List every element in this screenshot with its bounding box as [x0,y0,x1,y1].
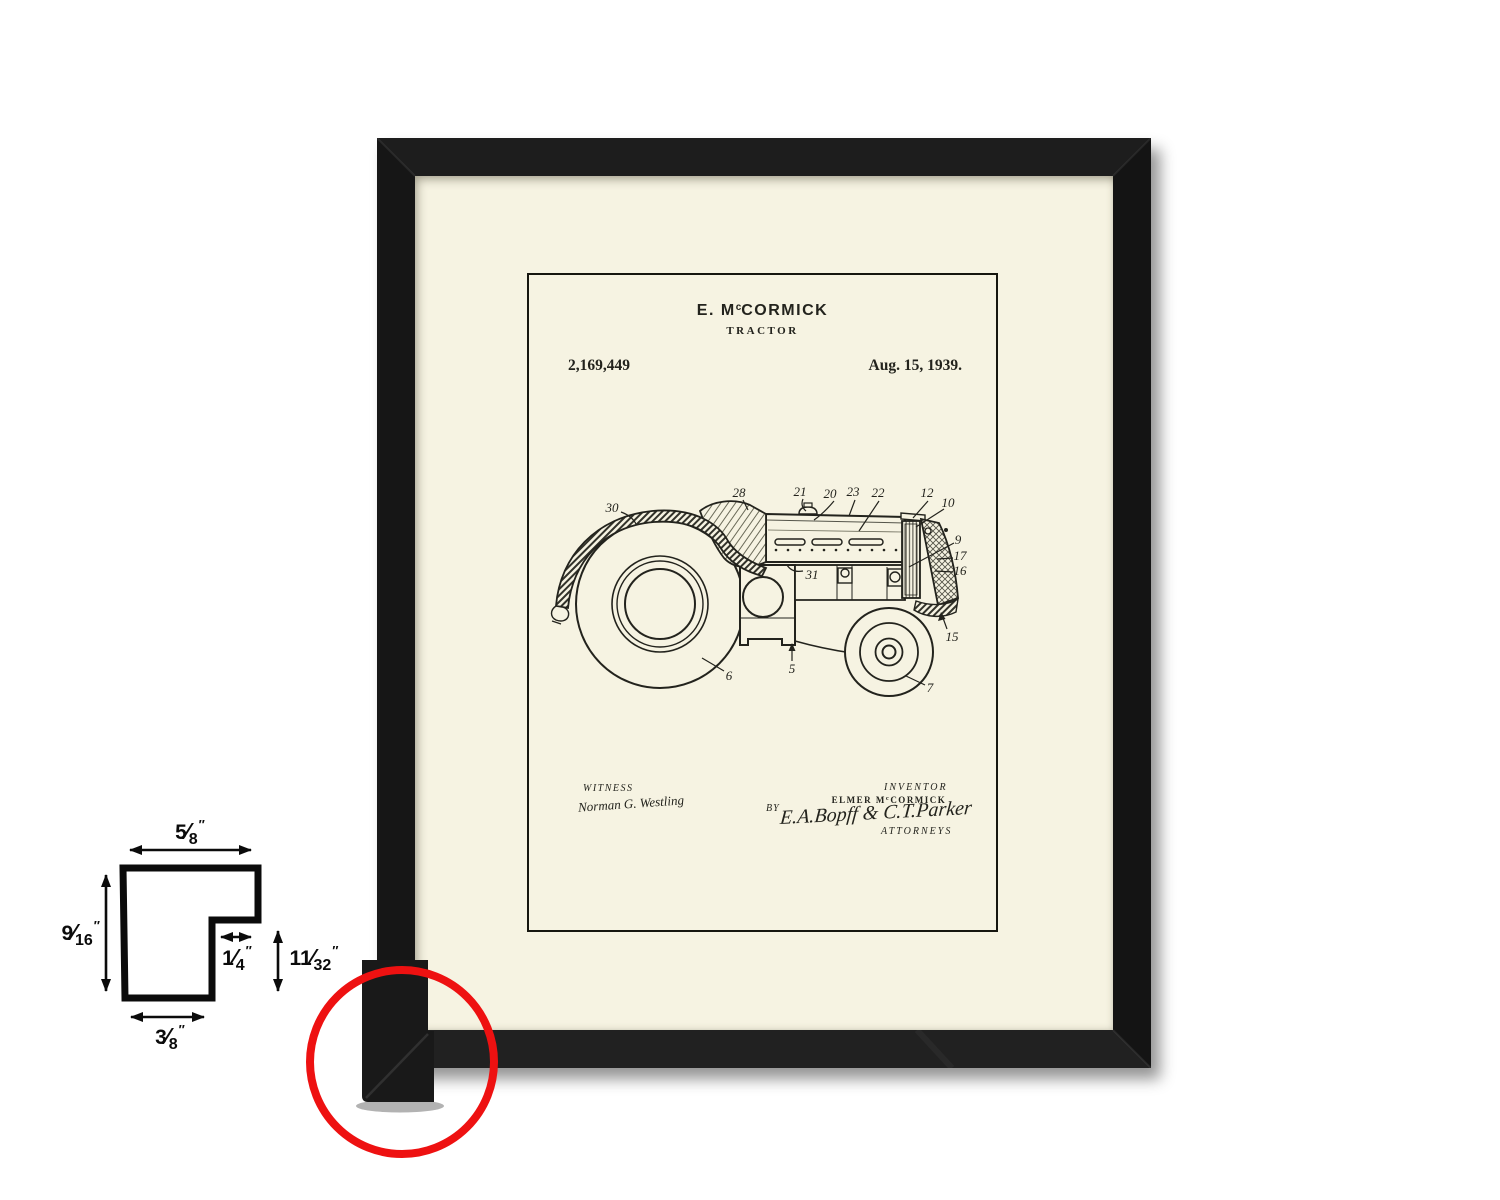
ref-31: 31 [805,567,819,582]
dim-label-rabbet-width: 1⁄4″ [208,943,266,975]
patent-print: E. McCORMICK TRACTOR 2,169,449 Aug. 15, … [527,273,998,932]
ref-6: 6 [726,668,733,683]
ref-20: 20 [824,486,838,501]
frame-cross-section-shape [123,868,258,998]
front-wheel [845,608,933,696]
engine-block [795,565,905,600]
ref-10: 10 [942,495,956,510]
witness-label: WITNESS [583,783,634,794]
attorneys-label: ATTORNEYS [881,826,952,837]
by-label: BY [766,803,780,814]
ref-7: 7 [927,680,934,695]
dim-label-top-width: 5⁄8″ [155,817,225,849]
grille-foot [914,599,958,616]
engine-hood [766,503,905,565]
arrow-15 [938,612,946,621]
picture-frame: E. McCORMICK TRACTOR 2,169,449 Aug. 15, … [377,138,1151,1068]
ref-28: 28 [733,485,747,500]
fuel-cap [799,507,817,514]
product-photo: 5⁄8″ 9⁄16″ 1⁄4″ 11⁄32″ 3⁄8″ E. McCORMICK [0,0,1500,1200]
dim-label-bottom-width: 3⁄8″ [140,1022,200,1054]
inventor-label: INVENTOR [884,782,948,793]
rear-fender [552,510,767,624]
transmission-housing [740,565,795,645]
ref-23: 23 [847,484,861,499]
dim-label-left-height: 9⁄16″ [28,918,100,950]
patent-inventor-title: E. McCORMICK [529,302,996,320]
dim-label-rabbet-height: 11⁄32″ [282,943,346,975]
witness-signature: Norman G. Westling [578,792,685,815]
ref-21: 21 [794,484,807,499]
ref-12: 12 [921,485,935,500]
leader-lines [621,499,954,685]
ref-16: 16 [954,563,968,578]
arrow-5 [789,643,796,651]
mat-board: E. McCORMICK TRACTOR 2,169,449 Aug. 15, … [415,176,1113,1030]
radiator-grille [901,513,958,616]
ref-30: 30 [605,500,620,515]
cowl [700,501,766,567]
rear-wheel [576,520,744,688]
ref-9: 9 [955,532,962,547]
patent-date: Aug. 15, 1939. [869,357,962,375]
patent-subtitle: TRACTOR [529,325,996,337]
chassis-line [795,641,852,653]
ref-15: 15 [946,629,960,644]
magnified-corner-shadow [356,1100,444,1113]
patent-number: 2,169,449 [568,357,630,375]
tractor-diagram: 30 28 21 20 23 22 12 10 9 17 16 15 31 5 [548,471,988,721]
hood-rivets [775,549,898,552]
ref-5: 5 [789,661,796,676]
ref-22: 22 [872,485,886,500]
ref-17: 17 [954,548,968,563]
